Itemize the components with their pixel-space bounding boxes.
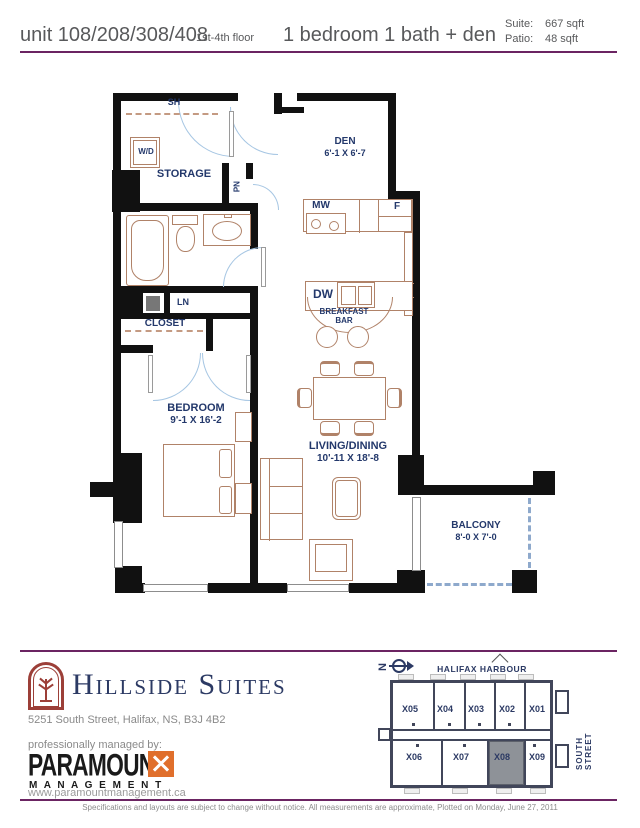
balcony-tab — [452, 788, 468, 794]
door-mark — [478, 723, 481, 726]
corridor-wall — [393, 739, 550, 741]
room-label-ln: LN — [177, 297, 189, 307]
balcony-tab — [490, 674, 506, 680]
unit-label: X01 — [529, 704, 545, 714]
property-name: Hillside Suites — [72, 668, 287, 702]
den-dims: 6'-1 X 6'-7 — [324, 148, 365, 158]
toilet-bowl — [176, 226, 195, 252]
balcony-tab — [460, 674, 476, 680]
highlighted-unit-x08 — [489, 741, 524, 785]
door-mark — [533, 744, 536, 747]
unit-label: X05 — [402, 704, 418, 714]
sink-basin — [212, 221, 242, 241]
annex-block — [555, 690, 569, 714]
paramount-wordmark: PARAMOUNT — [28, 748, 168, 784]
door-mark — [448, 723, 451, 726]
room-label-balcony: BALCONY 8'-0 X 7'-0 — [451, 520, 500, 542]
balcony-tab — [404, 788, 420, 794]
wall-segment — [250, 347, 258, 583]
sofa-cushion-line — [270, 486, 303, 487]
wall-segment — [164, 292, 170, 314]
floorplan-sheet: unit 108/208/308/408 1st-4th floor 1 bed… — [0, 0, 640, 828]
den-name: DEN — [324, 136, 365, 148]
unit-divider — [433, 683, 435, 729]
compass-arrowhead — [407, 661, 414, 671]
sofa — [260, 458, 303, 540]
unit-label: X07 — [453, 752, 469, 762]
counter-divider — [359, 200, 360, 233]
door-leaf — [261, 247, 266, 287]
site-map: N HALIFAX HARBOUR — [370, 652, 620, 797]
wall-segment — [297, 93, 396, 101]
wall-segment — [113, 210, 121, 455]
door-swing-arc — [202, 353, 250, 401]
disclaimer-text: Specifications and layouts are subject t… — [0, 803, 640, 812]
armchair-seat — [315, 544, 347, 572]
dining-chair — [387, 388, 402, 408]
room-label-f: F — [394, 201, 400, 213]
dining-chair — [320, 421, 340, 436]
room-label-wd: W/D — [138, 147, 154, 156]
wall-segment — [121, 583, 145, 593]
wall-segment — [208, 583, 287, 593]
nightstand — [235, 483, 252, 514]
window — [287, 584, 349, 592]
wall-segment — [90, 482, 118, 497]
stool — [347, 326, 369, 348]
door-mark — [508, 723, 511, 726]
unit-divider — [494, 683, 496, 729]
door-swing-arc — [253, 184, 279, 210]
breakfast-line2: BAR — [320, 316, 369, 325]
unit-divider — [464, 683, 466, 729]
door-mark — [416, 744, 419, 747]
unit-label: X04 — [437, 704, 453, 714]
floor-plan: SH W/D STORAGE PN DEN 6'-1 X 6'-7 MW F D… — [0, 0, 640, 648]
stove — [306, 213, 346, 234]
room-label-storage: STORAGE — [157, 168, 211, 181]
pillow — [219, 486, 232, 514]
tree-root-icon — [40, 700, 52, 702]
stool — [316, 326, 338, 348]
balcony-tab — [496, 788, 512, 794]
unit-label: X03 — [468, 704, 484, 714]
faucet — [224, 214, 232, 218]
wall-segment — [113, 93, 121, 173]
balcony-railing — [528, 498, 531, 568]
wall-segment — [412, 316, 420, 462]
bedroom-dims: 9'-1 X 16'-2 — [167, 415, 224, 427]
annex-block — [555, 744, 569, 768]
hillside-logo — [28, 662, 64, 710]
sofa-back — [269, 459, 270, 541]
balcony-name: BALCONY — [451, 520, 500, 532]
room-label-closet: CLOSET — [145, 318, 186, 330]
coffee-table — [332, 477, 361, 520]
wall-segment — [512, 570, 537, 593]
compass-bar — [389, 665, 407, 667]
door-swing-arc — [230, 107, 278, 155]
compass-icon — [392, 659, 408, 675]
footer-bottom-divider-line — [20, 799, 617, 801]
door-swing-arc — [153, 353, 201, 401]
room-label-breakfast-bar: BREAKFAST BAR — [320, 307, 369, 325]
corridor-wall — [393, 729, 550, 731]
pillow — [219, 449, 232, 478]
wall-segment — [412, 191, 420, 321]
unit-label: X02 — [499, 704, 515, 714]
door-leaf — [148, 355, 153, 393]
room-label-bedroom: BEDROOM 9'-1 X 16'-2 — [167, 402, 224, 426]
dining-chair — [320, 361, 340, 376]
burner — [329, 221, 339, 231]
arch-icon — [28, 662, 64, 710]
room-label-mw: MW — [312, 200, 330, 212]
unit-label: X09 — [529, 752, 545, 762]
window — [143, 584, 208, 592]
balcony-tab — [398, 674, 414, 680]
armchair — [309, 539, 353, 581]
room-label-dw: DW — [313, 288, 333, 302]
property-address: 5251 South Street, Halifax, NS, B3J 4B2 — [28, 714, 226, 726]
breakfast-line1: BREAKFAST — [320, 307, 369, 316]
room-label-living: LIVING/DINING 10'-11 X 18'-8 — [309, 440, 387, 464]
unit-label-highlighted: X08 — [494, 752, 510, 762]
wall-segment — [113, 345, 153, 353]
living-name: LIVING/DINING — [309, 440, 387, 453]
fridge-divider — [379, 216, 413, 217]
wall-segment — [397, 570, 425, 593]
shelf-line — [126, 108, 218, 115]
window — [114, 521, 123, 568]
balcony-tab — [530, 788, 546, 794]
balcony-railing — [427, 583, 512, 586]
wall-segment — [274, 107, 304, 113]
door-swing-arc — [223, 247, 263, 287]
wall-segment — [121, 292, 143, 313]
door-leaf — [246, 355, 251, 393]
street-label: SOUTH STREET — [575, 698, 593, 770]
wall-segment — [113, 203, 229, 211]
bathtub-basin — [131, 220, 164, 281]
paramount-x-icon — [148, 751, 174, 777]
website-url[interactable]: www.paramountmanagement.ca — [28, 787, 186, 799]
closet-rod — [125, 330, 203, 332]
hamper — [146, 296, 160, 311]
door-mark — [463, 744, 466, 747]
sofa-cushion-line — [270, 513, 303, 514]
dining-chair — [354, 421, 374, 436]
balcony-tab — [518, 674, 534, 680]
wall-segment — [388, 93, 396, 197]
living-dims: 10'-11 X 18'-8 — [309, 453, 387, 465]
unit-divider — [441, 741, 443, 785]
building-outline — [390, 680, 553, 788]
balcony-dims: 8'-0 X 7'-0 — [451, 532, 500, 542]
wall-segment — [121, 313, 258, 319]
annex-block — [378, 728, 391, 741]
unit-divider — [524, 683, 526, 729]
north-label: N — [377, 663, 389, 671]
wall-segment — [533, 471, 555, 487]
wall-segment — [206, 313, 213, 351]
harbour-label: HALIFAX HARBOUR — [437, 664, 527, 674]
burner — [311, 219, 321, 229]
wall-segment — [246, 163, 253, 179]
nightstand — [235, 412, 252, 442]
bedroom-name: BEDROOM — [167, 402, 224, 415]
balcony-tab — [430, 674, 446, 680]
unit-divider — [524, 741, 526, 785]
dining-chair — [354, 361, 374, 376]
door-leaf — [229, 111, 234, 157]
room-label-sh: SH — [168, 97, 181, 107]
door-mark — [412, 723, 415, 726]
bathtub — [126, 215, 169, 286]
room-label-den: DEN 6'-1 X 6'-7 — [324, 136, 365, 158]
toilet-tank — [172, 215, 198, 225]
dining-table — [313, 377, 386, 420]
coffee-table-inner — [335, 480, 358, 517]
dining-chair — [297, 388, 312, 408]
unit-label: X06 — [406, 752, 422, 762]
balcony-sliding-door — [412, 497, 421, 571]
room-label-pn: PN — [232, 181, 241, 192]
